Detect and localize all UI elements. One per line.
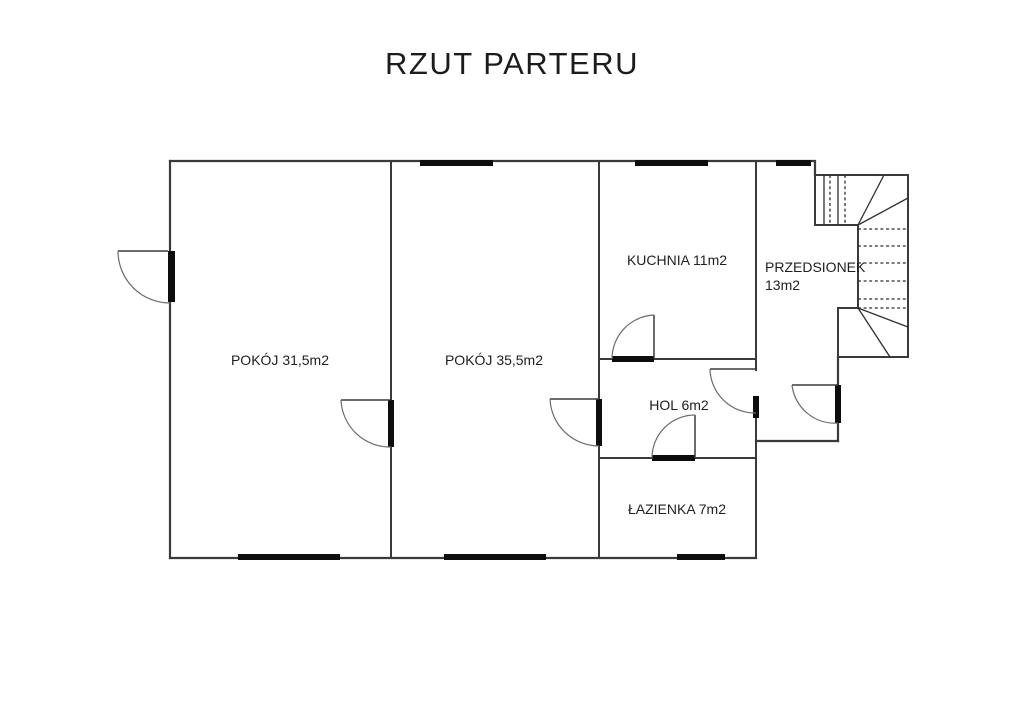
room-label-kuchnia: KUCHNIA 11m2: [627, 252, 727, 268]
window-pokoj2-bottom: [444, 554, 546, 560]
window-przedsionek-top: [776, 160, 811, 166]
door-swing-arc: [612, 315, 654, 359]
room-label-przedsionek-area: 13m2: [765, 277, 800, 293]
door-leaf-bar: [835, 385, 841, 423]
room-label-przedsionek: PRZEDSIONEK: [765, 259, 866, 275]
door-swing-arc: [792, 385, 838, 423]
door-swing-arc: [341, 400, 391, 447]
door-leaf-bar: [168, 251, 175, 302]
door-swing-arc: [550, 399, 599, 446]
window-pokoj2-top: [420, 160, 493, 166]
window-lazienka-bottom: [677, 554, 725, 560]
door-exterior-left: [118, 251, 175, 303]
door-swing-arc: [652, 415, 695, 458]
window-kuchnia-top: [635, 160, 708, 166]
door-leaf-bar: [612, 356, 654, 362]
plan-title: RZUT PARTERU: [385, 46, 639, 81]
door-kuchnia-hol: [612, 315, 654, 362]
floor-plan-page: RZUT PARTERU: [0, 0, 1024, 723]
door-leaf-bar: [753, 396, 759, 418]
window-pokoj1-bottom: [238, 554, 340, 560]
door-leaf-bar: [652, 455, 695, 461]
room-label-pokoj-1: POKÓJ 31,5m2: [231, 352, 329, 368]
door-hol-lazienka: [652, 415, 695, 461]
room-label-pokoj-2: POKÓJ 35,5m2: [445, 352, 543, 368]
door-pokoj1: [341, 400, 394, 447]
door-hol-przedsionek: [710, 369, 759, 418]
door-pokoj2: [550, 399, 602, 446]
room-label-lazienka: ŁAZIENKA 7m2: [628, 501, 726, 517]
door-leaf-bar: [388, 400, 394, 447]
door-exterior-przedsionek: [792, 385, 841, 423]
door-swing-arc: [118, 251, 170, 303]
floor-plan-drawing: RZUT PARTERU: [0, 0, 1024, 723]
door-leaf-bar: [596, 399, 602, 446]
room-label-hol: HOL 6m2: [649, 397, 709, 413]
door-swing-arc: [710, 369, 756, 413]
room-labels: POKÓJ 31,5m2 POKÓJ 35,5m2 KUCHNIA 11m2 P…: [231, 252, 866, 517]
